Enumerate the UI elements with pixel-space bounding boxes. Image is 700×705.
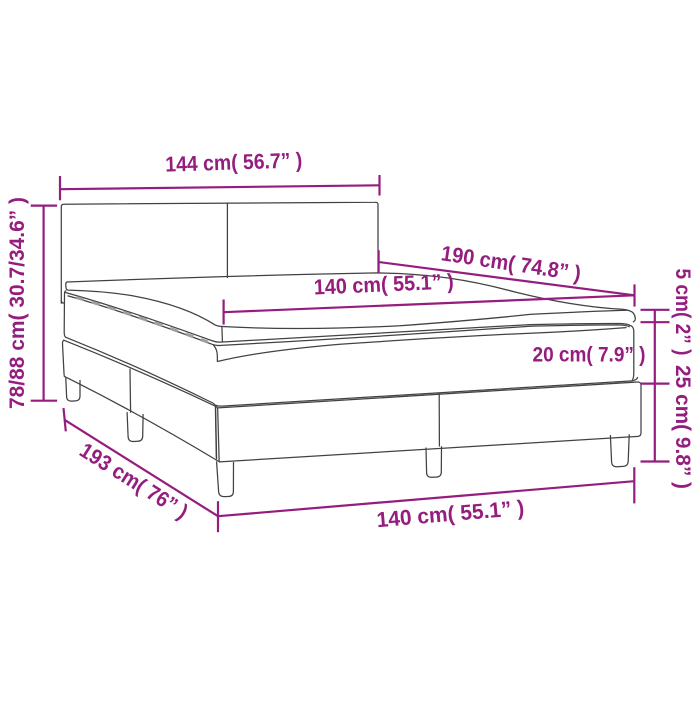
svg-text:5 cm( 2” ): 5 cm( 2” ) [671,269,695,356]
svg-text:25 cm( 9.8” ): 25 cm( 9.8” ) [671,365,695,489]
svg-text:144 cm( 56.7” ): 144 cm( 56.7” ) [165,148,303,176]
svg-text:78/88 cm( 30.7/34.6” ): 78/88 cm( 30.7/34.6” ) [5,197,29,409]
svg-text:20 cm( 7.9” ): 20 cm( 7.9” ) [533,343,646,367]
